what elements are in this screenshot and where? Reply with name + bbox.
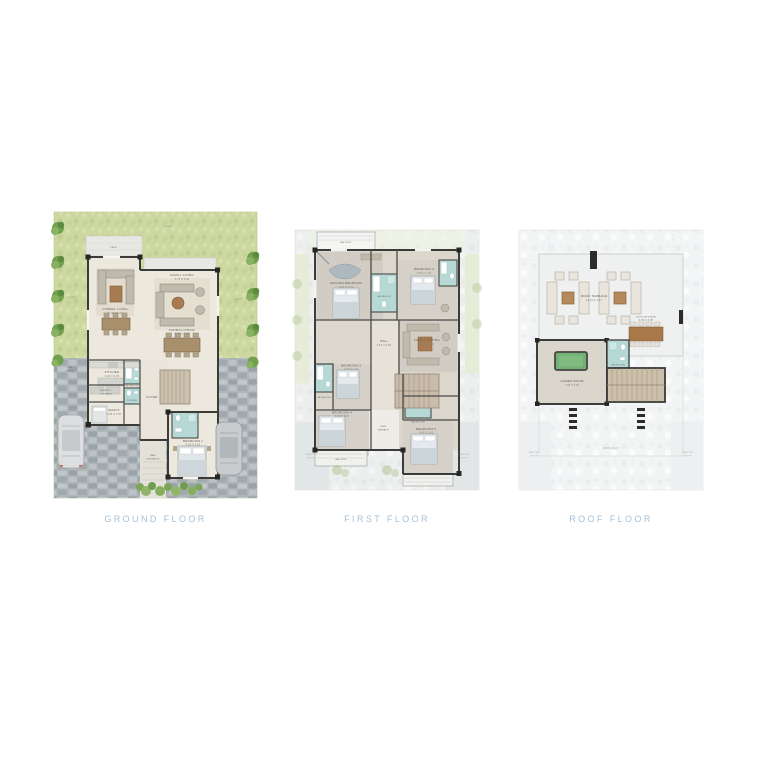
bedroom2-dims: 3.50 X 4.20 [417, 271, 432, 275]
armchair-icon [442, 347, 450, 355]
main-entrance-label: ENTRANCE [147, 458, 160, 461]
armchair-icon [607, 272, 616, 280]
shower-icon [387, 276, 395, 284]
roof-bathroom-label: BATHROOM [611, 364, 624, 367]
master-bath-label: BATHROOM [377, 295, 390, 298]
formal-living-label: FORMAL LIVING [102, 307, 128, 311]
bathtub-icon [441, 262, 447, 274]
armchair-icon [196, 306, 205, 315]
bedroom1-label: BEDROOM 1 [183, 439, 203, 443]
balcony-bottom-label: BALCONY [335, 458, 347, 461]
armchair-icon [555, 272, 564, 280]
ground-floor-caption: GROUND FLOOR [48, 512, 263, 526]
maids-label: MAID'S [108, 408, 119, 412]
master-bedroom-dims: 5.25 X 4.75 [339, 285, 354, 289]
kitchen-label: KITCHEN [105, 370, 120, 374]
sofa-icon [631, 282, 641, 314]
ground-floor-plan: LAWN LAWN LAWN PATIO CAR PORCH FORMAL LI… [48, 210, 263, 500]
family-living-dims: 4.75 X 5.25 [175, 277, 190, 281]
terrace-label: TERRACE [377, 429, 389, 432]
bedroom4-dims: 4.00 X 3.65 [335, 414, 350, 418]
bedroom1-dims: 4.00 X 3.65 [186, 443, 201, 447]
games-room [535, 338, 609, 406]
first-floor-plan: BALCONY MASTER BEDROOM 5.25 X 4.75 BATHR… [287, 224, 487, 496]
sofa-icon [547, 282, 557, 314]
stairs-icon [607, 368, 665, 402]
carport-right-label: ROOF [461, 458, 468, 460]
bathroom-label: BATHROOM [317, 396, 330, 399]
family-living-label: FAMILY LIVING [170, 273, 194, 277]
armchair-icon [569, 272, 578, 280]
formal-dining-label: FORMAL DINING [169, 328, 196, 332]
sink-icon [134, 377, 139, 380]
sofa-icon [599, 282, 609, 314]
bedroom5-bed-icon [411, 434, 437, 464]
stairs-icon [160, 370, 190, 404]
lawn-right-label: LAWN [234, 297, 243, 301]
ghost-tree-icon [292, 315, 302, 325]
car-icon [58, 415, 84, 468]
sink-icon [620, 357, 625, 361]
games-room-label: GAMES ROOM [560, 379, 583, 383]
maids-bed-icon [92, 406, 107, 423]
carport-left-label: CARPORT [528, 451, 540, 454]
ghost-tree-icon [472, 319, 482, 329]
bathroom2-label: BATHROOM [411, 421, 424, 424]
carport-right-label: CARPORT [682, 451, 694, 454]
formal-dining-dims: 4.75 X 3.40 [175, 332, 190, 336]
sink-icon [134, 391, 138, 394]
roof-terrace-label: ROOF TERRACE [581, 294, 607, 298]
car-icon [216, 422, 242, 475]
bedroom3-bed-icon [337, 370, 359, 398]
table-icon [614, 292, 626, 304]
roof-terrace-dims: 11.24 X 4.67 [586, 298, 602, 302]
toilet-icon [326, 381, 330, 387]
carport-right-label: CARPORT [458, 453, 470, 456]
bathtub-icon [373, 276, 380, 292]
bathtub-icon [317, 366, 324, 380]
maids-dims: 3.05 X 2.60 [107, 412, 122, 416]
bedroom4-bed-icon [319, 416, 345, 446]
sink-icon [175, 428, 182, 432]
shower-icon [188, 414, 196, 422]
coffee-table-icon [172, 297, 184, 309]
carport-left-label: CARPORT [305, 453, 317, 456]
armchair-icon [442, 333, 450, 341]
stove-icon [108, 362, 118, 368]
lawn-left-label: LAWN [68, 295, 77, 299]
armchair-icon [196, 288, 205, 297]
ghost-tree-icon [292, 279, 302, 289]
family-sitting-dims: 4.75 X 4.10 [420, 342, 435, 346]
bedroom3-label: BEDROOM 3 [341, 364, 361, 368]
dining-table-icon [102, 318, 130, 330]
toilet-icon [176, 415, 181, 421]
car-porch-label: CAR [68, 366, 73, 369]
outdoor-dining-icon [629, 322, 663, 347]
roof-deck-label: ROOF DECK [603, 446, 619, 450]
laundry-label: STORAGE [100, 393, 112, 396]
ghost-tree-icon [292, 351, 302, 361]
sofa-icon [579, 282, 589, 314]
bedroom5-dims: 4.00 X 3.65 [419, 431, 434, 435]
carport-right-label: ROOF [685, 456, 692, 458]
armchair-icon [607, 316, 616, 324]
lawn-top-label: LAWN [164, 224, 173, 228]
terrace-label: OPEN [380, 426, 387, 428]
roof-floor-plan: ROOF TERRACE 11.24 X 4.67 OUTDOOR DINING… [511, 224, 711, 496]
ghost-tree-icon [472, 283, 482, 293]
floorplan-sheet: LAWN LAWN LAWN PATIO CAR PORCH FORMAL LI… [0, 0, 768, 768]
toilet-icon [450, 273, 454, 279]
patio-label: PATIO [111, 246, 118, 249]
kitchen-dims: 4.30 X 6.35 [105, 374, 120, 378]
bathroom-label: BATHROOM [125, 385, 138, 388]
balcony-top [317, 232, 375, 250]
shower-icon [609, 342, 617, 350]
main-entrance-label: MAIN [150, 454, 156, 457]
bedroom4-label: BEDROOM 4 [332, 411, 352, 415]
powder-label: POWDER [127, 400, 138, 402]
stairs-icon [395, 374, 439, 408]
outdoor-dining-dims: 4.50 X 4.05 [639, 318, 654, 322]
bedroom1-bed-icon [173, 446, 211, 476]
bedroom5-label: BEDROOM 5 [416, 427, 436, 431]
armchair-icon [555, 316, 564, 324]
family-sitting-label: FAMILY SITTING [414, 338, 440, 342]
toilet-icon [127, 390, 132, 396]
dining-table-icon [629, 327, 663, 341]
hall-label: HALL [380, 339, 388, 343]
carport-left-label: ROOF [531, 456, 538, 458]
car-porch-label: PORCH [66, 371, 75, 373]
master-bedroom-label: MASTER BEDROOM [330, 281, 362, 285]
roof-floor-caption: ROOF FLOOR [511, 512, 711, 526]
dining-table-icon [164, 338, 200, 352]
toilet-icon [382, 301, 387, 307]
armchair-icon [569, 316, 578, 324]
armchair-icon [621, 316, 630, 324]
armchair-icon [621, 272, 630, 280]
formal-living-dims: 4.75 X 5.25 [108, 311, 123, 315]
balcony-top-label: BALCONY [340, 241, 352, 244]
bedroom2-label: BEDROOM 2 [414, 267, 434, 271]
laundry-label: LAUNDRY + [99, 389, 113, 392]
toilet-icon [621, 344, 626, 350]
armchair-icon [441, 304, 449, 312]
carport-left-label: ROOF [308, 458, 315, 460]
foyer-label: FOYER [146, 395, 158, 399]
hall-dims: 3.10 X 3.60 [377, 343, 392, 347]
bedroom3-dims: 3.50 X 4.20 [344, 367, 359, 371]
coffee-table-icon [110, 286, 122, 302]
first-floor-caption: FIRST FLOOR [287, 512, 487, 526]
games-room-dims: 4.95 X 5.50 [565, 383, 580, 387]
table-icon [562, 292, 574, 304]
